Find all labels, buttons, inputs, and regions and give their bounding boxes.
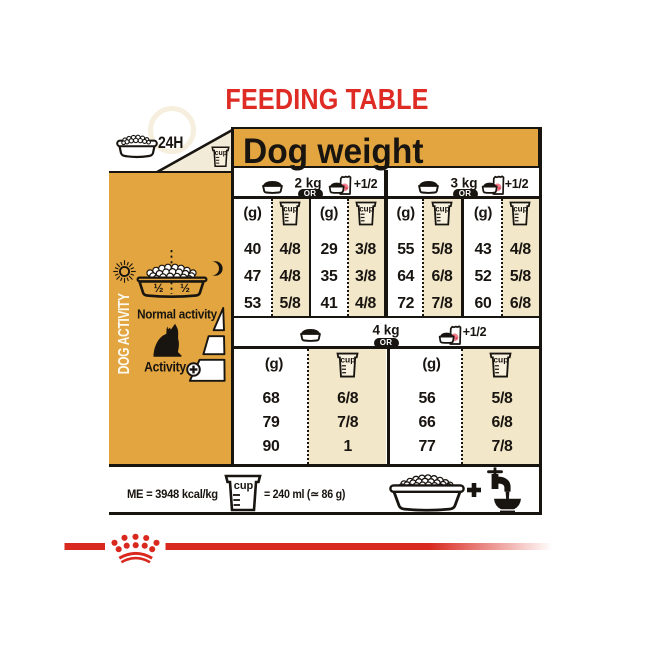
svg-text:½: ½ [180, 281, 190, 295]
svg-text:cup: cup [435, 204, 449, 213]
svg-text:cup: cup [514, 204, 528, 213]
svg-text:cup: cup [283, 204, 297, 213]
svg-text:cup: cup [214, 149, 226, 156]
svg-text:cup: cup [494, 355, 509, 365]
svg-text:½: ½ [153, 281, 163, 295]
svg-text:cup: cup [341, 355, 356, 365]
svg-text:cup: cup [359, 204, 373, 213]
svg-text:cup: cup [234, 480, 254, 492]
